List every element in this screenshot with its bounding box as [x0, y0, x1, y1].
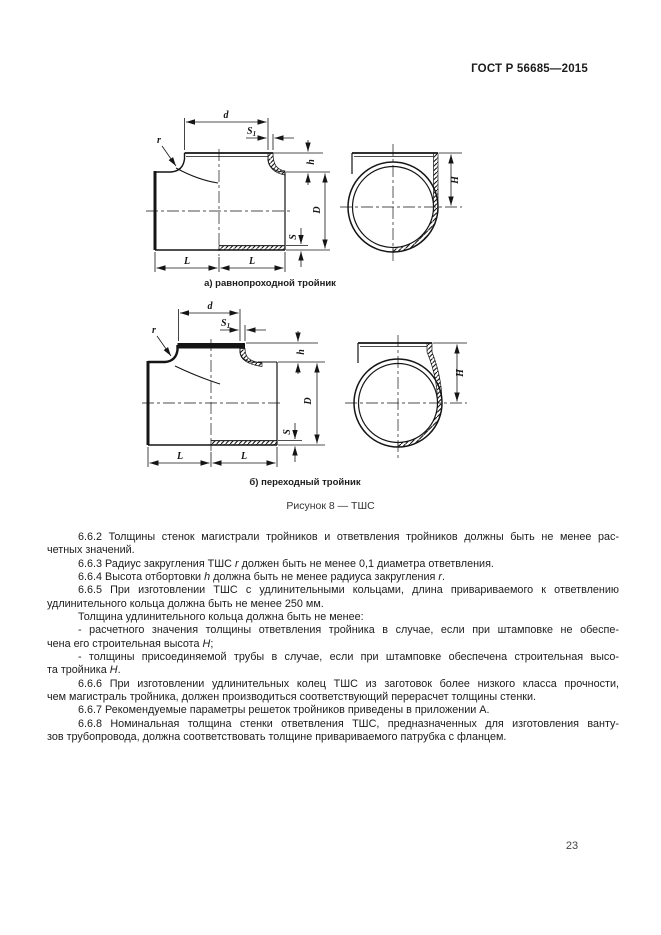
dim-label-d: d — [208, 301, 214, 312]
centerlines — [146, 149, 290, 256]
text-line: зов трубопровода, должна соответствовать… — [47, 731, 619, 744]
dim-label-h: h — [306, 159, 317, 165]
text-line: 6.6.8 Номинальная толщина стенки ответвл… — [47, 718, 619, 731]
text-line: 6.6.6 При изготовлении удлинительных кол… — [47, 678, 619, 691]
text-line: 6.6.4 Высота отбортовки h должна быть не… — [47, 571, 619, 584]
dim-label-s1: S1 — [221, 318, 230, 330]
text-line: - толщины присоединяемой трубы в случае,… — [47, 651, 619, 664]
dim-label-r: r — [157, 135, 161, 146]
tee-section-outline — [148, 343, 277, 445]
text-line: Толщина удлинительного кольца должна быт… — [47, 611, 619, 624]
document-page: ГОСТ Р 56685—2015 — [0, 0, 661, 935]
text-line: чем магистраль тройника, должен производ… — [47, 691, 619, 704]
text-line: 6.6.5 При изготовлении ТШС с удлинительн… — [47, 584, 619, 597]
text-line: 6.6.2 Толщины стенок магистрали тройнико… — [47, 531, 619, 544]
dim-label-h: h — [296, 349, 307, 355]
figure-b-caption: б) переходный тройник — [185, 477, 425, 488]
text-line: удлинительного кольца должна быть не мен… — [47, 598, 619, 611]
figure-caption: Рисунок 8 — ТШС — [0, 500, 661, 512]
text-line: 6.6.3 Радиус закругления ТШС r должен бы… — [47, 558, 619, 571]
dim-label-d: d — [224, 110, 230, 121]
page-number: 23 — [548, 840, 596, 852]
figure-b-drawing: d S1 r h D S L — [140, 300, 610, 472]
dim-label-D: D — [312, 206, 323, 214]
dim-label-L-right: L — [248, 256, 255, 267]
dim-label-D: D — [303, 397, 314, 405]
dim-label-L-left: L — [176, 451, 183, 462]
figure-a-drawing: d S1 r h D S L L — [140, 100, 610, 295]
dim-label-H: H — [455, 368, 466, 378]
text-line: 6.6.7 Рекомендуемые параметры решеток тр… — [47, 704, 619, 717]
dim-label-S: S — [282, 429, 293, 435]
dim-label-r: r — [152, 325, 156, 336]
body-text: 6.6.2 Толщины стенок магистрали тройнико… — [47, 531, 619, 745]
tee-side-view: H — [345, 335, 467, 458]
dim-label-s1: S1 — [247, 126, 256, 138]
dim-label-L-right: L — [240, 451, 247, 462]
text-line: - расчетного значения толщины ответвлени… — [47, 624, 619, 637]
dim-label-H: H — [450, 175, 461, 185]
text-line: та тройника H. — [47, 664, 619, 677]
figure-a-caption: а) равнопроходной тройник — [150, 278, 390, 289]
dim-label-S: S — [288, 234, 299, 240]
dim-label-L-left: L — [183, 256, 190, 267]
text-line: чена его строительная высота H; — [47, 638, 619, 651]
centerlines — [142, 339, 282, 451]
tee-side-view: H — [340, 144, 462, 263]
text-line: четных значений. — [47, 544, 619, 557]
doc-number: ГОСТ Р 56685—2015 — [471, 63, 588, 75]
